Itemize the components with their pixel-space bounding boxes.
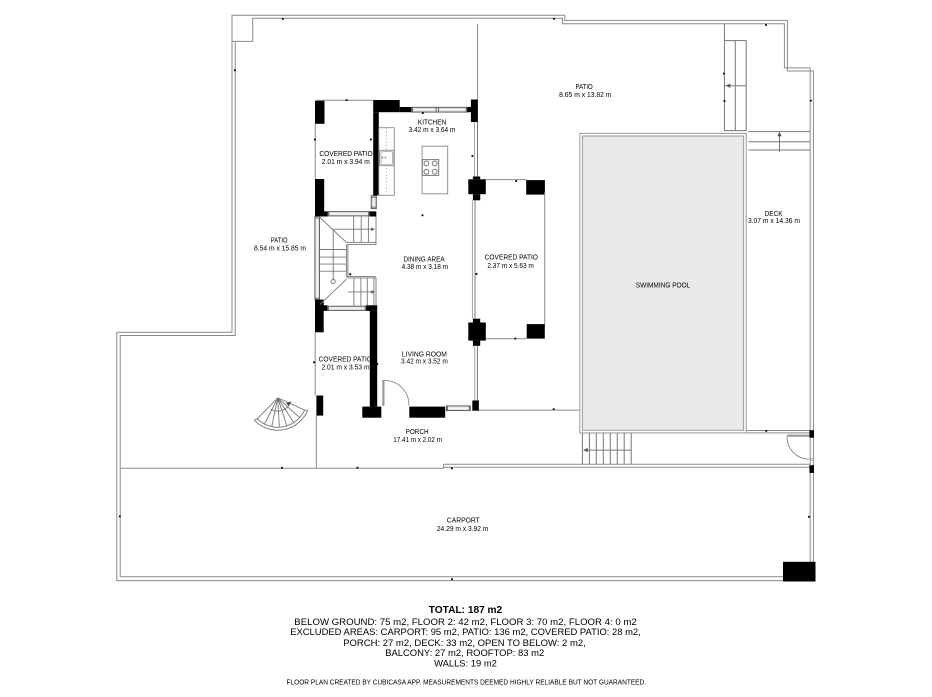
svg-text:COVERED PATIO: COVERED PATIO — [485, 254, 539, 261]
svg-text:PATIO: PATIO — [576, 84, 594, 91]
svg-text:DINING AREA: DINING AREA — [403, 256, 445, 263]
svg-text:LIVING ROOM: LIVING ROOM — [402, 351, 447, 358]
svg-text:2.37 m x 5.63 m: 2.37 m x 5.63 m — [487, 263, 534, 270]
svg-text:COVERED PATIO: COVERED PATIO — [319, 151, 373, 158]
svg-text:KITCHEN: KITCHEN — [418, 119, 446, 126]
svg-text:3.42 m x 3.64 m: 3.42 m x 3.64 m — [409, 127, 456, 134]
svg-text:3.42 m x 3.52 m: 3.42 m x 3.52 m — [401, 359, 448, 366]
svg-text:WALLS: 19 m2: WALLS: 19 m2 — [434, 658, 497, 669]
svg-text:3.07 m x 14.36 m: 3.07 m x 14.36 m — [748, 218, 800, 225]
svg-text:24.29 m x 3.92 m: 24.29 m x 3.92 m — [437, 526, 489, 533]
svg-text:TOTAL: 187 m2: TOTAL: 187 m2 — [429, 605, 503, 616]
svg-text:COVERED PATIO: COVERED PATIO — [319, 357, 373, 364]
svg-text:2.01 m x 3.53 m: 2.01 m x 3.53 m — [321, 365, 369, 372]
svg-text:8.54 m x 15.85 m: 8.54 m x 15.85 m — [254, 246, 306, 253]
svg-text:17.41 m x 2.02 m: 17.41 m x 2.02 m — [393, 437, 442, 444]
svg-text:FLOOR PLAN CREATED BY CUBICASA: FLOOR PLAN CREATED BY CUBICASA APP. MEAS… — [287, 679, 647, 686]
svg-text:PATIO: PATIO — [271, 237, 288, 244]
svg-text:EXCLUDED AREAS: CARPORT: 95 m2: EXCLUDED AREAS: CARPORT: 95 m2, PATIO: 1… — [290, 627, 641, 638]
svg-text:CARPORT: CARPORT — [447, 518, 481, 525]
svg-text:PORCH: PORCH — [406, 429, 429, 436]
svg-text:2.01 m x 3.94 m: 2.01 m x 3.94 m — [322, 159, 370, 166]
svg-text:4.38 m x 3.18 m: 4.38 m x 3.18 m — [402, 264, 449, 271]
svg-text:8.65 m x 13.82 m: 8.65 m x 13.82 m — [559, 92, 611, 99]
svg-text:SWIMMING POOL: SWIMMING POOL — [636, 283, 691, 290]
